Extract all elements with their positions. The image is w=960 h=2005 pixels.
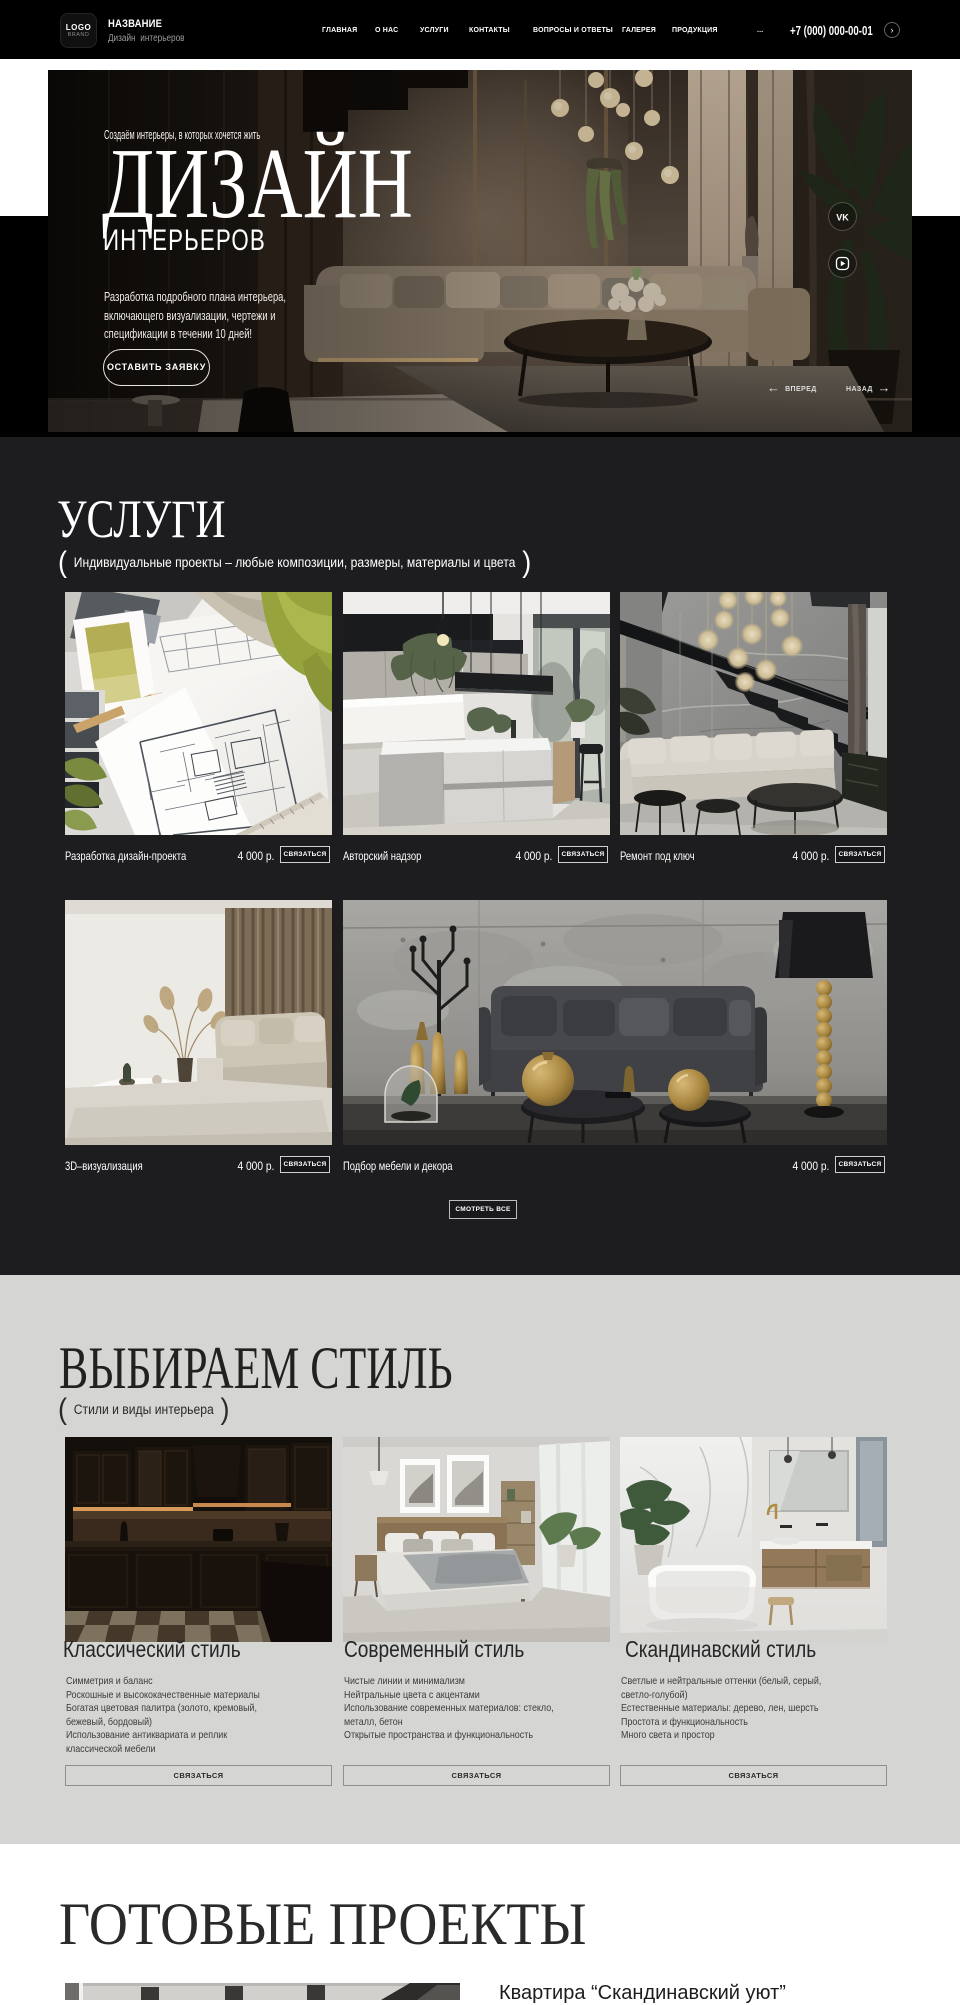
svg-text:VK: VK: [836, 213, 849, 223]
